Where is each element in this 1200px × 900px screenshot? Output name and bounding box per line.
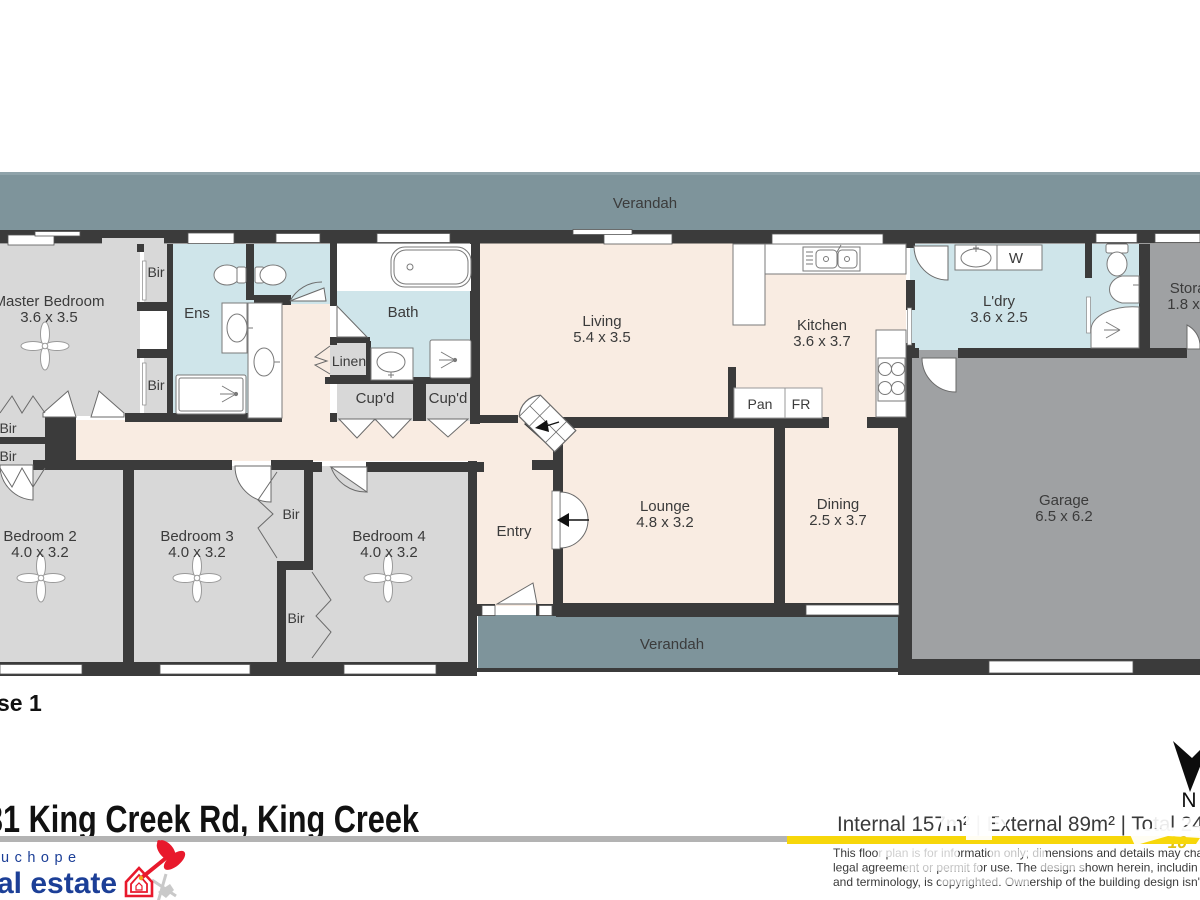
svg-text:Bir: Bir bbox=[147, 377, 164, 393]
svg-text:Ens: Ens bbox=[184, 305, 210, 322]
svg-text:5.4 x 3.5: 5.4 x 3.5 bbox=[573, 329, 631, 346]
svg-text:4.0 x 3.2: 4.0 x 3.2 bbox=[168, 544, 226, 561]
svg-text:Bedroom 4: Bedroom 4 bbox=[352, 528, 425, 545]
svg-text:4.0 x 3.2: 4.0 x 3.2 bbox=[11, 544, 69, 561]
svg-text:Master Bedroom: Master Bedroom bbox=[0, 293, 104, 310]
svg-text:1.8 x 2.4: 1.8 x 2.4 bbox=[1167, 296, 1200, 313]
svg-text:3.6 x 3.5: 3.6 x 3.5 bbox=[20, 309, 78, 326]
svg-text:3.6 x 2.5: 3.6 x 2.5 bbox=[970, 309, 1028, 326]
svg-text:Bir: Bir bbox=[147, 264, 164, 280]
svg-text:L'dry: L'dry bbox=[983, 293, 1016, 310]
svg-text:6.5 x 6.2: 6.5 x 6.2 bbox=[1035, 508, 1093, 525]
svg-text:N: N bbox=[1181, 789, 1196, 812]
svg-text:Bath: Bath bbox=[388, 304, 419, 321]
svg-text:Verandah: Verandah bbox=[613, 195, 677, 212]
svg-text:Pan: Pan bbox=[748, 396, 773, 412]
svg-text:Linen: Linen bbox=[332, 353, 366, 369]
svg-text:Dining: Dining bbox=[817, 496, 860, 513]
svg-text:Verandah: Verandah bbox=[640, 636, 704, 653]
svg-text:4.8 x 3.2: 4.8 x 3.2 bbox=[636, 514, 694, 531]
svg-text:Lounge: Lounge bbox=[640, 498, 690, 515]
svg-text:al estate: al estate bbox=[0, 867, 117, 900]
svg-text:Bedroom 2: Bedroom 2 bbox=[3, 528, 76, 545]
svg-text:Entry: Entry bbox=[496, 523, 532, 540]
svg-text:3.6 x 3.7: 3.6 x 3.7 bbox=[793, 333, 851, 350]
svg-text:Bir: Bir bbox=[282, 506, 299, 522]
svg-text:Storage: Storage bbox=[1170, 280, 1200, 297]
svg-text:W: W bbox=[1009, 250, 1024, 267]
svg-text:4.0 x 3.2: 4.0 x 3.2 bbox=[360, 544, 418, 561]
svg-text:Bir: Bir bbox=[287, 610, 304, 626]
svg-text:legal agreement or permit for: legal agreement or permit for use. The d… bbox=[833, 861, 1200, 875]
svg-text:Bir: Bir bbox=[0, 448, 17, 464]
svg-text:Bir: Bir bbox=[0, 420, 17, 436]
svg-text:FR: FR bbox=[792, 396, 811, 412]
svg-text:31 King Creek Rd, King Creek: 31 King Creek Rd, King Creek bbox=[0, 799, 420, 841]
svg-text:Cup'd: Cup'd bbox=[356, 390, 395, 407]
svg-text:Bedroom 3: Bedroom 3 bbox=[160, 528, 233, 545]
svg-text:Kitchen: Kitchen bbox=[797, 317, 847, 334]
svg-text:uchope: uchope bbox=[1, 850, 82, 866]
svg-text:se 1: se 1 bbox=[0, 690, 42, 716]
svg-text:Living: Living bbox=[582, 313, 621, 330]
svg-text:2.5 x 3.7: 2.5 x 3.7 bbox=[809, 512, 867, 529]
svg-text:Garage: Garage bbox=[1039, 492, 1089, 509]
svg-text:Cup'd: Cup'd bbox=[429, 390, 468, 407]
